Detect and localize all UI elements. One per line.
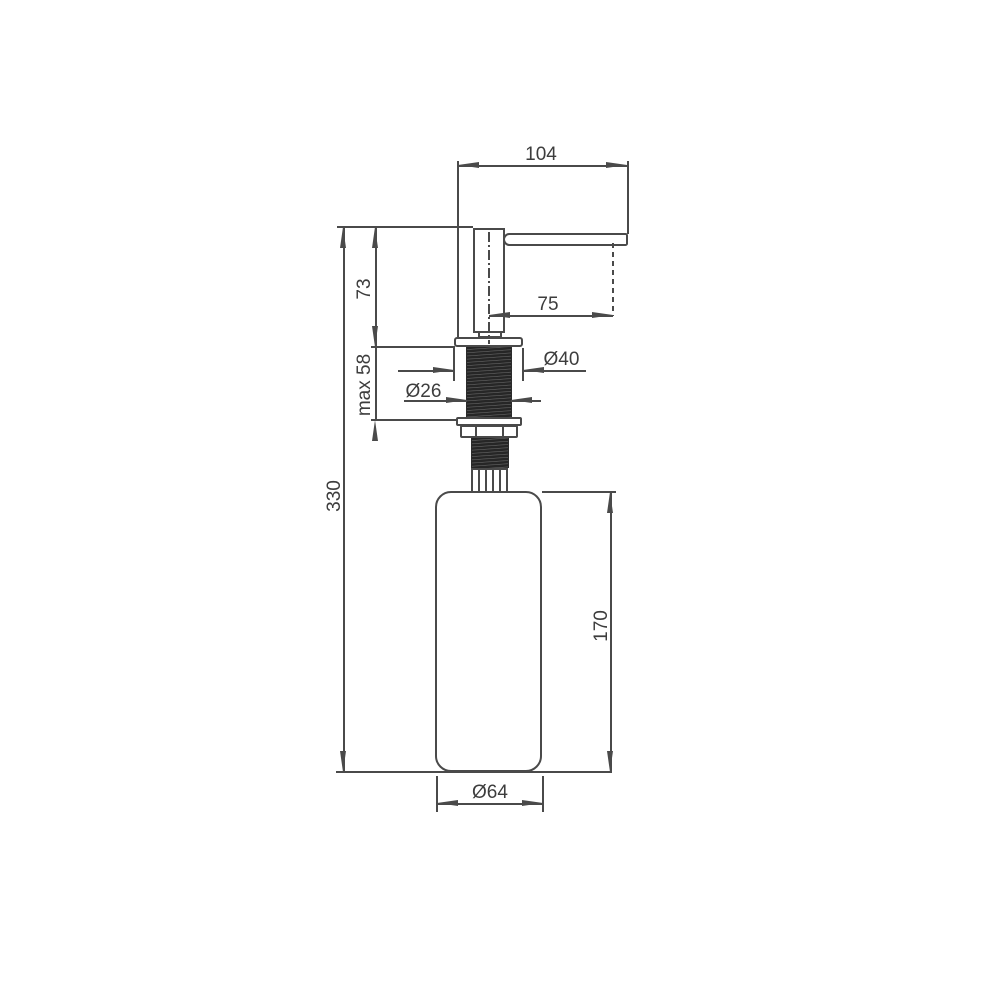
dim-label-bottle-diameter: Ø64 — [460, 783, 520, 802]
hex-nut-facet-line — [475, 427, 477, 436]
technical-drawing-canvas: 104 75 Ø40 Ø26 330 73 max 58 170 Ø64 — [0, 0, 1000, 1000]
extension-line-bottom — [336, 771, 612, 773]
arrowhead-170-top — [607, 492, 613, 513]
dim-label-head-width: 104 — [511, 144, 571, 164]
arrowhead-330-top — [340, 227, 346, 248]
pump-spout — [503, 233, 628, 246]
arrowhead-104-left — [458, 162, 479, 168]
extension-line-flange-right — [522, 348, 524, 381]
threaded-shaft-upper — [466, 347, 512, 417]
dim-label-max-mounting-thickness: max 58 — [354, 340, 374, 430]
arrowhead-170-bottom — [607, 751, 613, 772]
extension-line-washer-top — [371, 419, 458, 421]
arrowhead-73-top — [372, 227, 378, 248]
arrowhead-26-right — [511, 397, 532, 403]
extension-line-104-left — [457, 161, 459, 337]
dim-label-spout-projection: 75 — [518, 294, 578, 314]
extension-line-bottle-left — [436, 776, 438, 812]
extension-line-bottle-top — [542, 491, 616, 493]
arrowhead-64-right — [522, 800, 543, 806]
soap-bottle — [435, 491, 542, 772]
dim-label-head-height: 73 — [354, 259, 374, 319]
hex-nut — [460, 425, 518, 438]
spout-outlet-reference-line — [612, 243, 614, 316]
threaded-shaft-lower — [471, 438, 509, 468]
arrowhead-104-right — [606, 162, 627, 168]
extension-line-head-top — [337, 226, 473, 228]
arrowhead-75-left — [489, 312, 510, 318]
extension-line-104-right — [627, 161, 629, 234]
dim-label-total-height: 330 — [323, 456, 345, 536]
dimension-line-104 — [458, 165, 627, 167]
arrowhead-330-bottom — [340, 751, 346, 772]
extension-line-bottle-right — [542, 776, 544, 812]
dim-label-flange-diameter: Ø40 — [531, 350, 592, 369]
extension-line-flange-bottom — [371, 346, 455, 348]
hex-nut-facet-line — [502, 427, 504, 436]
dim-label-bottle-height: 170 — [591, 591, 611, 661]
arrowhead-75-right — [592, 312, 613, 318]
arrowhead-64-left — [437, 800, 458, 806]
dimension-line-73-58 — [375, 227, 377, 420]
extension-line-flange-left — [453, 348, 455, 381]
pump-body-centerline — [488, 232, 490, 344]
dim-label-thread-diameter: Ø26 — [393, 382, 454, 401]
locking-washer — [456, 417, 522, 426]
hose-connector — [471, 468, 508, 492]
arrowhead-40-left — [433, 367, 454, 373]
